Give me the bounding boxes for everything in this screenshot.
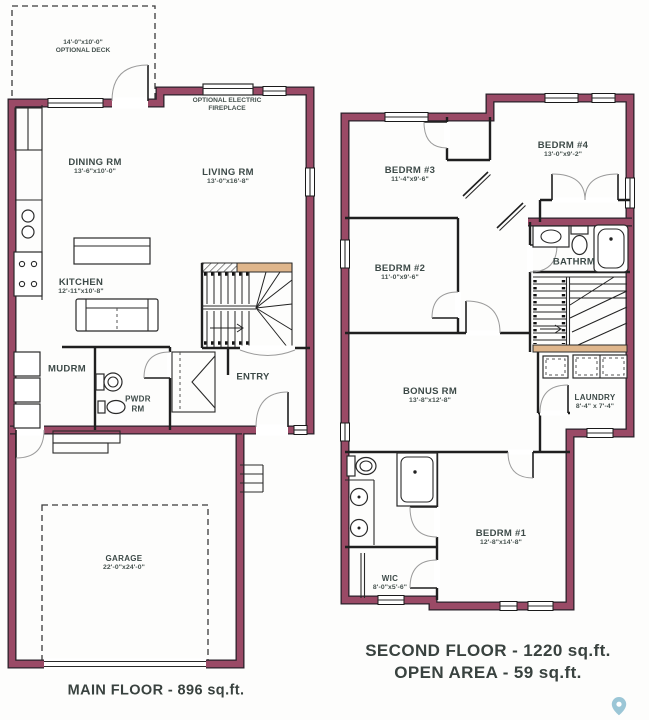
entry-label: ENTRY (236, 371, 269, 382)
bathroom-label: BATHRM (553, 256, 595, 267)
garage-label: GARAGE 22'-0"x24'-0" (103, 554, 145, 572)
entry-closet (172, 352, 215, 412)
floor-plan-drawing (0, 0, 649, 720)
deck-label: 14'-0"x10'-0" OPTIONAL DECK (56, 39, 110, 55)
kitchen-fixtures (14, 105, 150, 300)
powder-room-label: PWDR RM (125, 394, 151, 413)
staircase-main (202, 263, 292, 348)
laundry-appliances (543, 355, 627, 378)
main-floor-plan (10, 6, 315, 670)
bonus-room-label: BONUS RM 13'-8"x12'-8" (403, 386, 457, 406)
living-room-label: LIVING RM 13'-0"x16'-8" (202, 167, 254, 187)
location-pin-icon (612, 697, 626, 715)
staircase-second (533, 277, 627, 352)
fireplace-symbol (203, 84, 253, 95)
fireplace-label: OPTIONAL ELECTRIC FIREPLACE (193, 97, 262, 113)
bedroom4-label: BEDRM #4 13'-0"x9'-2" (538, 140, 588, 160)
bedroom2-label: BEDRM #2 11'-0"x9'-6" (375, 263, 425, 283)
kitchen-island (74, 238, 150, 264)
mudroom-lockers (14, 352, 40, 428)
dining-room-label: DINING RM 13'-6"x10'-0" (68, 157, 121, 177)
wic-label: WIC 8'-0"x5'-6" (373, 574, 407, 592)
garage-door-outline (42, 505, 208, 662)
doors-main (16, 65, 288, 458)
laundry-label: LAUNDRY 8'-4" x 7'-4" (575, 393, 616, 411)
bedroom1-label: BEDRM #1 12'-8"x14'-8" (476, 528, 526, 548)
kitchen-label: KITCHEN 12'-11"x10'-8" (58, 277, 103, 297)
steps (53, 431, 263, 492)
mudroom-label: MUDRM (48, 363, 86, 374)
floor-plan-page: 14'-0"x10'-0" OPTIONAL DECK OPTIONAL ELE… (0, 0, 649, 720)
open-area-caption: OPEN AREA - 59 sq.ft. (394, 663, 582, 683)
sofa-symbol (76, 299, 158, 331)
second-floor-caption: SECOND FLOOR - 1220 sq.ft. (365, 641, 611, 661)
main-floor-caption: MAIN FLOOR - 896 sq.ft. (68, 682, 245, 699)
bedroom3-label: BEDRM #3 11'-4"x9'-6" (385, 165, 435, 185)
